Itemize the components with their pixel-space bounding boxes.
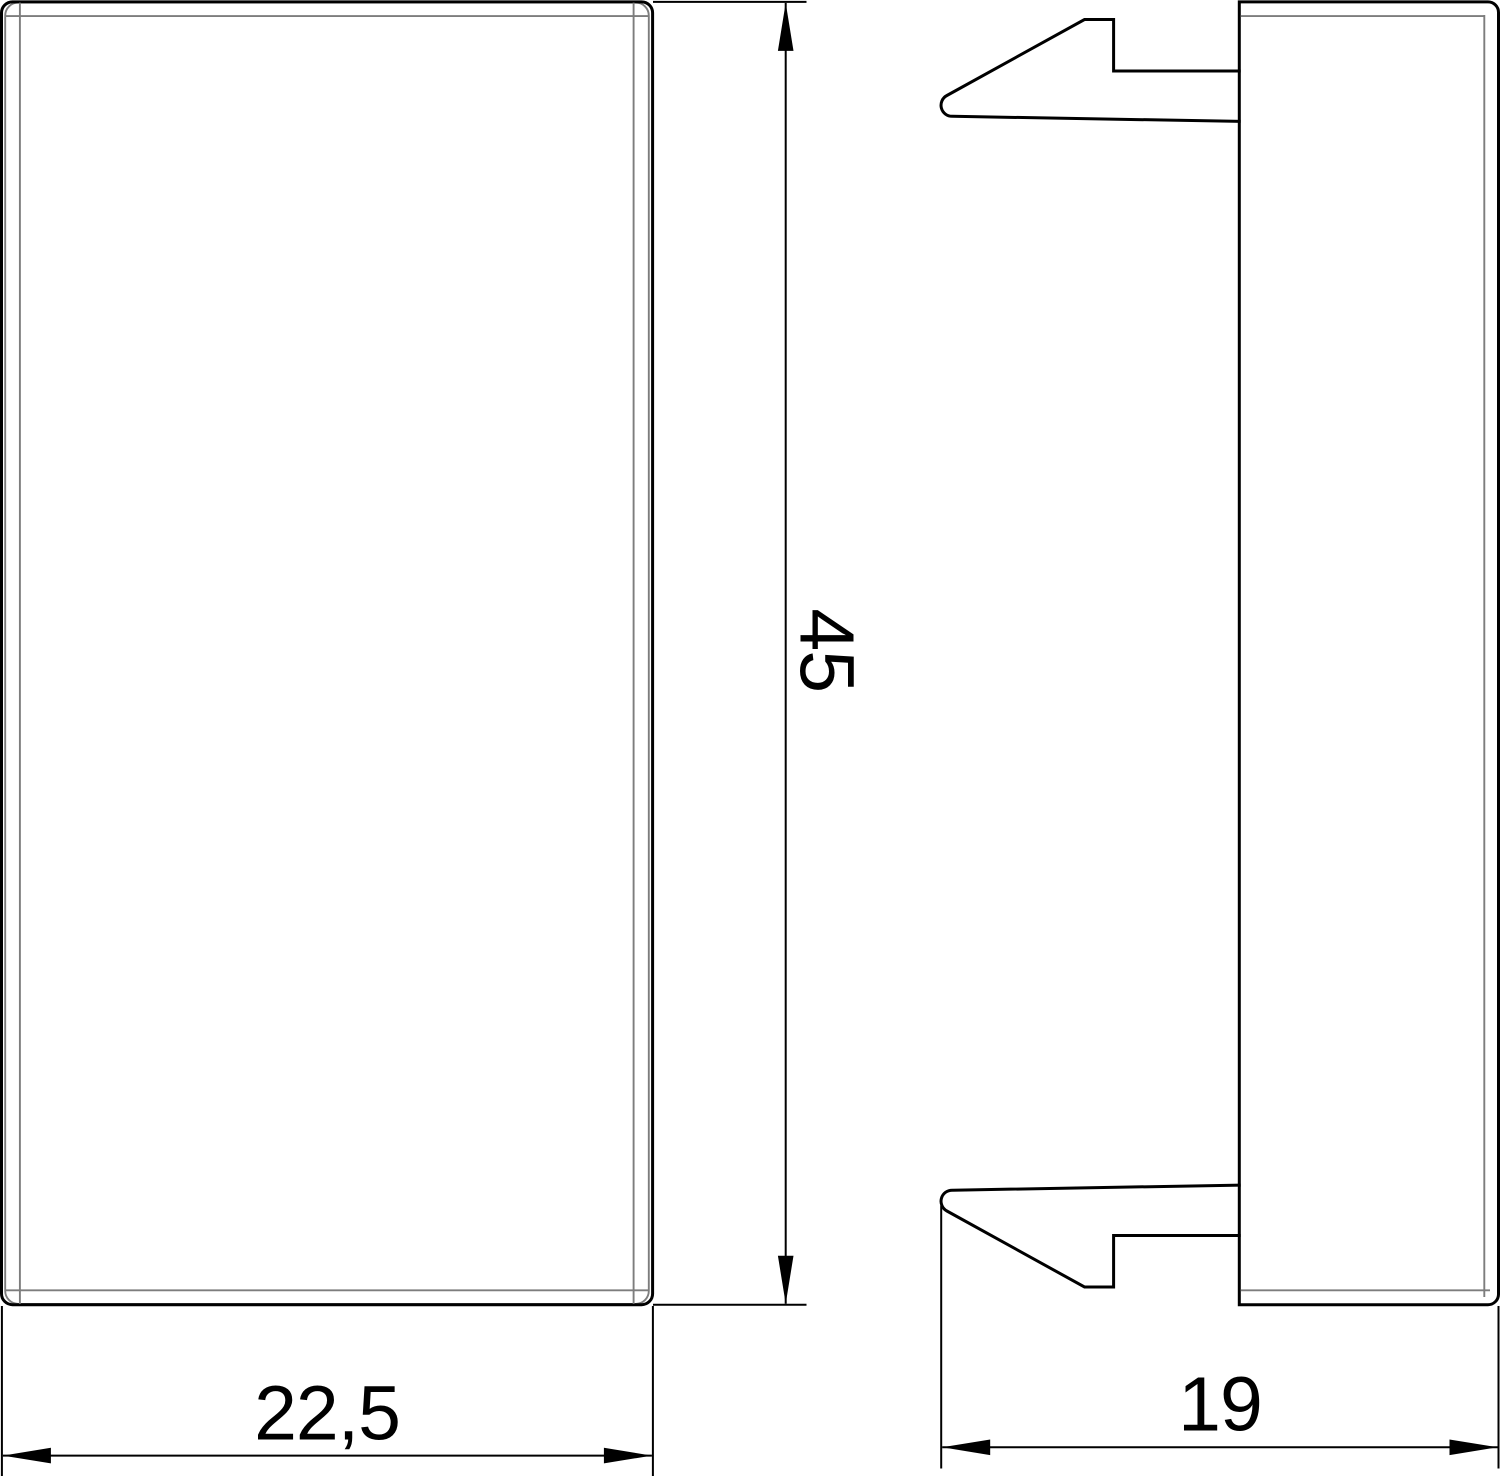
svg-text:22,5: 22,5 [254, 1371, 400, 1457]
svg-text:45: 45 [784, 608, 870, 692]
svg-text:19: 19 [1178, 1362, 1262, 1448]
